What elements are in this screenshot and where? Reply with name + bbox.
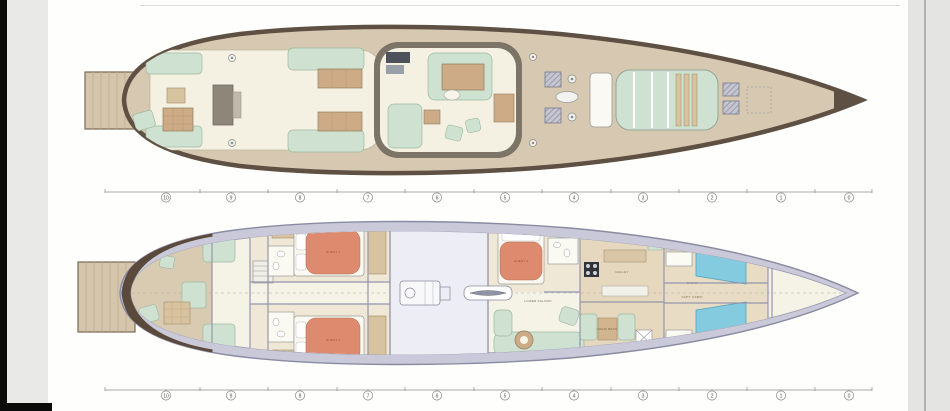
station-label: 4 xyxy=(573,393,576,399)
station-line-lower xyxy=(105,387,872,391)
deck-hatch-icon xyxy=(545,108,561,123)
nav-console xyxy=(386,52,410,63)
station-label: 6 xyxy=(436,195,439,201)
station-label: 2 xyxy=(711,195,714,201)
station-markers-lower: 10 9 8 7 6 5 4 3 2 1 0 xyxy=(161,391,853,400)
lower-deck-plan: GUEST 1 GUEST 2 xyxy=(78,209,858,376)
station-label: 0 xyxy=(848,195,851,201)
station-label: 8 xyxy=(299,393,302,399)
station-label: 5 xyxy=(504,195,507,201)
general-arrangement-drawing: 10 9 8 7 6 5 4 3 2 1 0 10 9 8 7 6 5 4 3 … xyxy=(0,0,950,411)
room-label: GALLEY xyxy=(615,270,628,274)
cockpit-table xyxy=(163,108,193,131)
station-label: 5 xyxy=(504,393,507,399)
deck-plan xyxy=(85,27,862,173)
salon-sofa xyxy=(388,104,422,148)
deck-hatch-icon xyxy=(545,72,561,87)
station-label: 3 xyxy=(642,393,645,399)
station-label: 3 xyxy=(642,195,645,201)
station-label: 9 xyxy=(230,393,233,399)
station-label: 4 xyxy=(573,195,576,201)
bed-label: GUEST 3 xyxy=(514,259,528,263)
tender-hatch xyxy=(590,73,612,127)
station-label: 8 xyxy=(299,195,302,201)
station-label: 7 xyxy=(367,195,370,201)
station-label: 9 xyxy=(230,195,233,201)
station-label: 1 xyxy=(780,195,783,201)
deckhouse xyxy=(374,42,522,158)
station-label: 10 xyxy=(163,195,169,201)
salon-cabinet xyxy=(494,94,514,122)
station-line-upper xyxy=(105,189,872,193)
bed-label: GUEST 1 xyxy=(326,250,340,254)
station-label: 10 xyxy=(163,393,169,399)
keel-root xyxy=(464,286,512,300)
aft-deck-table xyxy=(164,302,190,324)
salon-table xyxy=(442,64,484,90)
station-markers-upper: 10 9 8 7 6 5 4 3 2 1 0 xyxy=(161,193,853,202)
station-label: 1 xyxy=(780,393,783,399)
room-label: CREW MESS xyxy=(597,327,618,331)
stove-icon xyxy=(584,262,599,277)
scanned-yacht-drawing-page: { "stations": { "labels": ["10","9","8",… xyxy=(0,0,950,411)
station-label: 7 xyxy=(367,393,370,399)
station-label: 6 xyxy=(436,393,439,399)
deck-hatch-icon xyxy=(723,83,739,96)
room-label: CAPT. CABIN xyxy=(681,295,702,299)
station-label: 0 xyxy=(848,393,851,399)
station-label: 2 xyxy=(711,393,714,399)
forward-coachroof xyxy=(616,70,718,130)
deck-hatch-icon xyxy=(723,101,739,114)
bed-label: GUEST 2 xyxy=(326,338,340,342)
room-label: LOWER SALOON xyxy=(524,299,551,303)
